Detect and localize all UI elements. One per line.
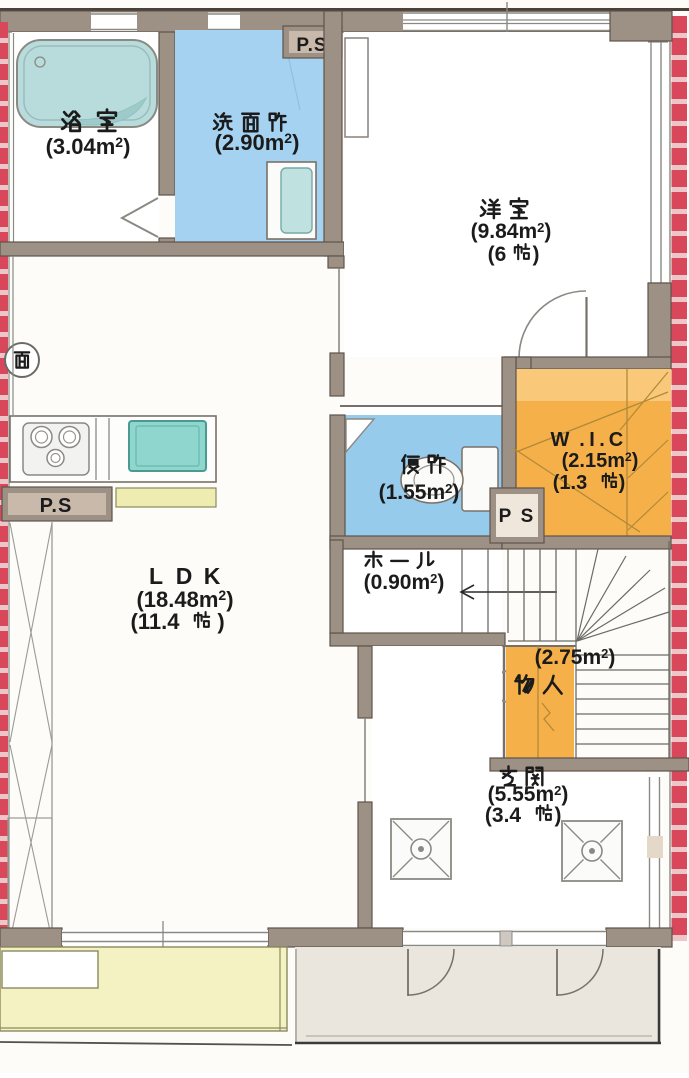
svg-text:P: P [499,506,512,527]
svg-text:S: S [521,506,534,527]
svg-text:): ) [217,609,224,634]
svg-text:K: K [204,563,221,589]
svg-text:.: . [599,429,605,451]
svg-text:W: W [551,429,570,451]
svg-text:(3.4: (3.4 [485,804,522,827]
svg-text:): ) [619,472,626,494]
svg-text:L: L [149,563,163,589]
svg-text:P.S: P.S [40,495,73,517]
svg-text:): ) [533,243,540,266]
svg-text:I: I [589,429,595,451]
svg-text:(6: (6 [488,243,507,266]
svg-text:(1.3: (1.3 [553,472,587,494]
svg-text:P.S: P.S [296,35,327,56]
svg-text:): ) [555,804,562,827]
svg-text:.: . [579,429,585,451]
svg-text:D: D [176,563,193,589]
svg-text:(11.4: (11.4 [131,609,181,634]
svg-text:C: C [609,429,623,451]
